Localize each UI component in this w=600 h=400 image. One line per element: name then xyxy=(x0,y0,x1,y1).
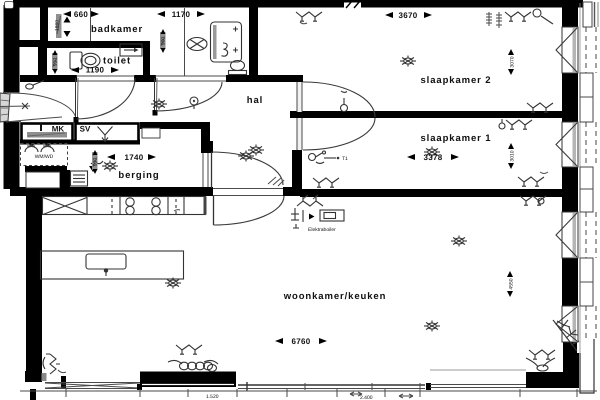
svg-text:badkamer: badkamer xyxy=(91,24,143,35)
svg-text:2.400: 2.400 xyxy=(360,395,373,400)
svg-text:slaapkamer 1: slaapkamer 1 xyxy=(420,133,491,144)
svg-text:3070: 3070 xyxy=(510,56,516,67)
svg-text:slaapkamer 2: slaapkamer 2 xyxy=(420,75,491,86)
svg-text:woonkamer/keuken: woonkamer/keuken xyxy=(283,291,387,302)
svg-text:SV: SV xyxy=(80,125,91,134)
svg-text:hal: hal xyxy=(247,95,263,106)
svg-text:3010: 3010 xyxy=(510,150,516,161)
svg-text:Elektraboiler: Elektraboiler xyxy=(308,227,336,233)
svg-text:930: 930 xyxy=(93,158,99,167)
svg-text:1.520: 1.520 xyxy=(206,394,219,400)
svg-text:1860: 1860 xyxy=(55,20,61,31)
svg-text:3378: 3378 xyxy=(424,153,443,162)
svg-text:1190: 1190 xyxy=(86,66,105,75)
svg-text:660: 660 xyxy=(74,10,88,19)
svg-text:WM/WD: WM/WD xyxy=(35,154,54,160)
svg-text:1170: 1170 xyxy=(172,10,191,19)
svg-text:berging: berging xyxy=(118,170,159,181)
svg-text:900: 900 xyxy=(161,37,167,46)
svg-text:3670: 3670 xyxy=(399,11,418,20)
svg-text:4550: 4550 xyxy=(509,278,515,289)
svg-text:1740: 1740 xyxy=(125,153,144,162)
svg-text:910: 910 xyxy=(53,58,59,67)
svg-text:6760: 6760 xyxy=(292,337,311,346)
svg-text:toilet: toilet xyxy=(103,56,131,67)
svg-text:MK: MK xyxy=(52,125,65,134)
svg-text:T1: T1 xyxy=(342,156,348,162)
